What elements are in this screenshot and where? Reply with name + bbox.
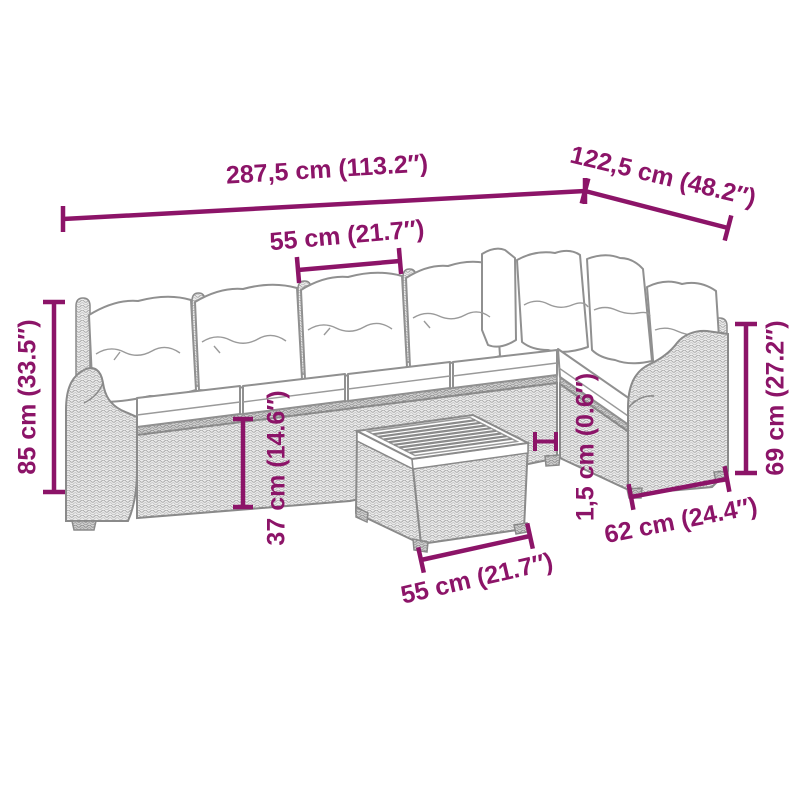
- dim-line-back-height: [43, 302, 65, 492]
- dimension-diagram: 287,5 cm (113.2″) 122,5 cm (48.2″) 55 cm…: [0, 0, 800, 800]
- foot-icon: [545, 455, 560, 466]
- dim-label-top-thickness: 1,5 cm (0.6″): [572, 373, 601, 521]
- coffee-table: [356, 415, 528, 552]
- foot-icon: [514, 523, 527, 534]
- foot-icon: [72, 521, 96, 530]
- dim-label-seat-height: 37 cm (14.6″): [263, 390, 292, 545]
- back-pillow: [482, 249, 516, 347]
- dim-label-back-height: 85 cm (33.5″): [14, 319, 43, 474]
- dim-line-armrest-height: [735, 324, 757, 473]
- sofa-set-illustration: [0, 0, 800, 800]
- dim-label-armrest-height: 69 cm (27.2″): [762, 320, 791, 475]
- back-pillow: [517, 251, 588, 352]
